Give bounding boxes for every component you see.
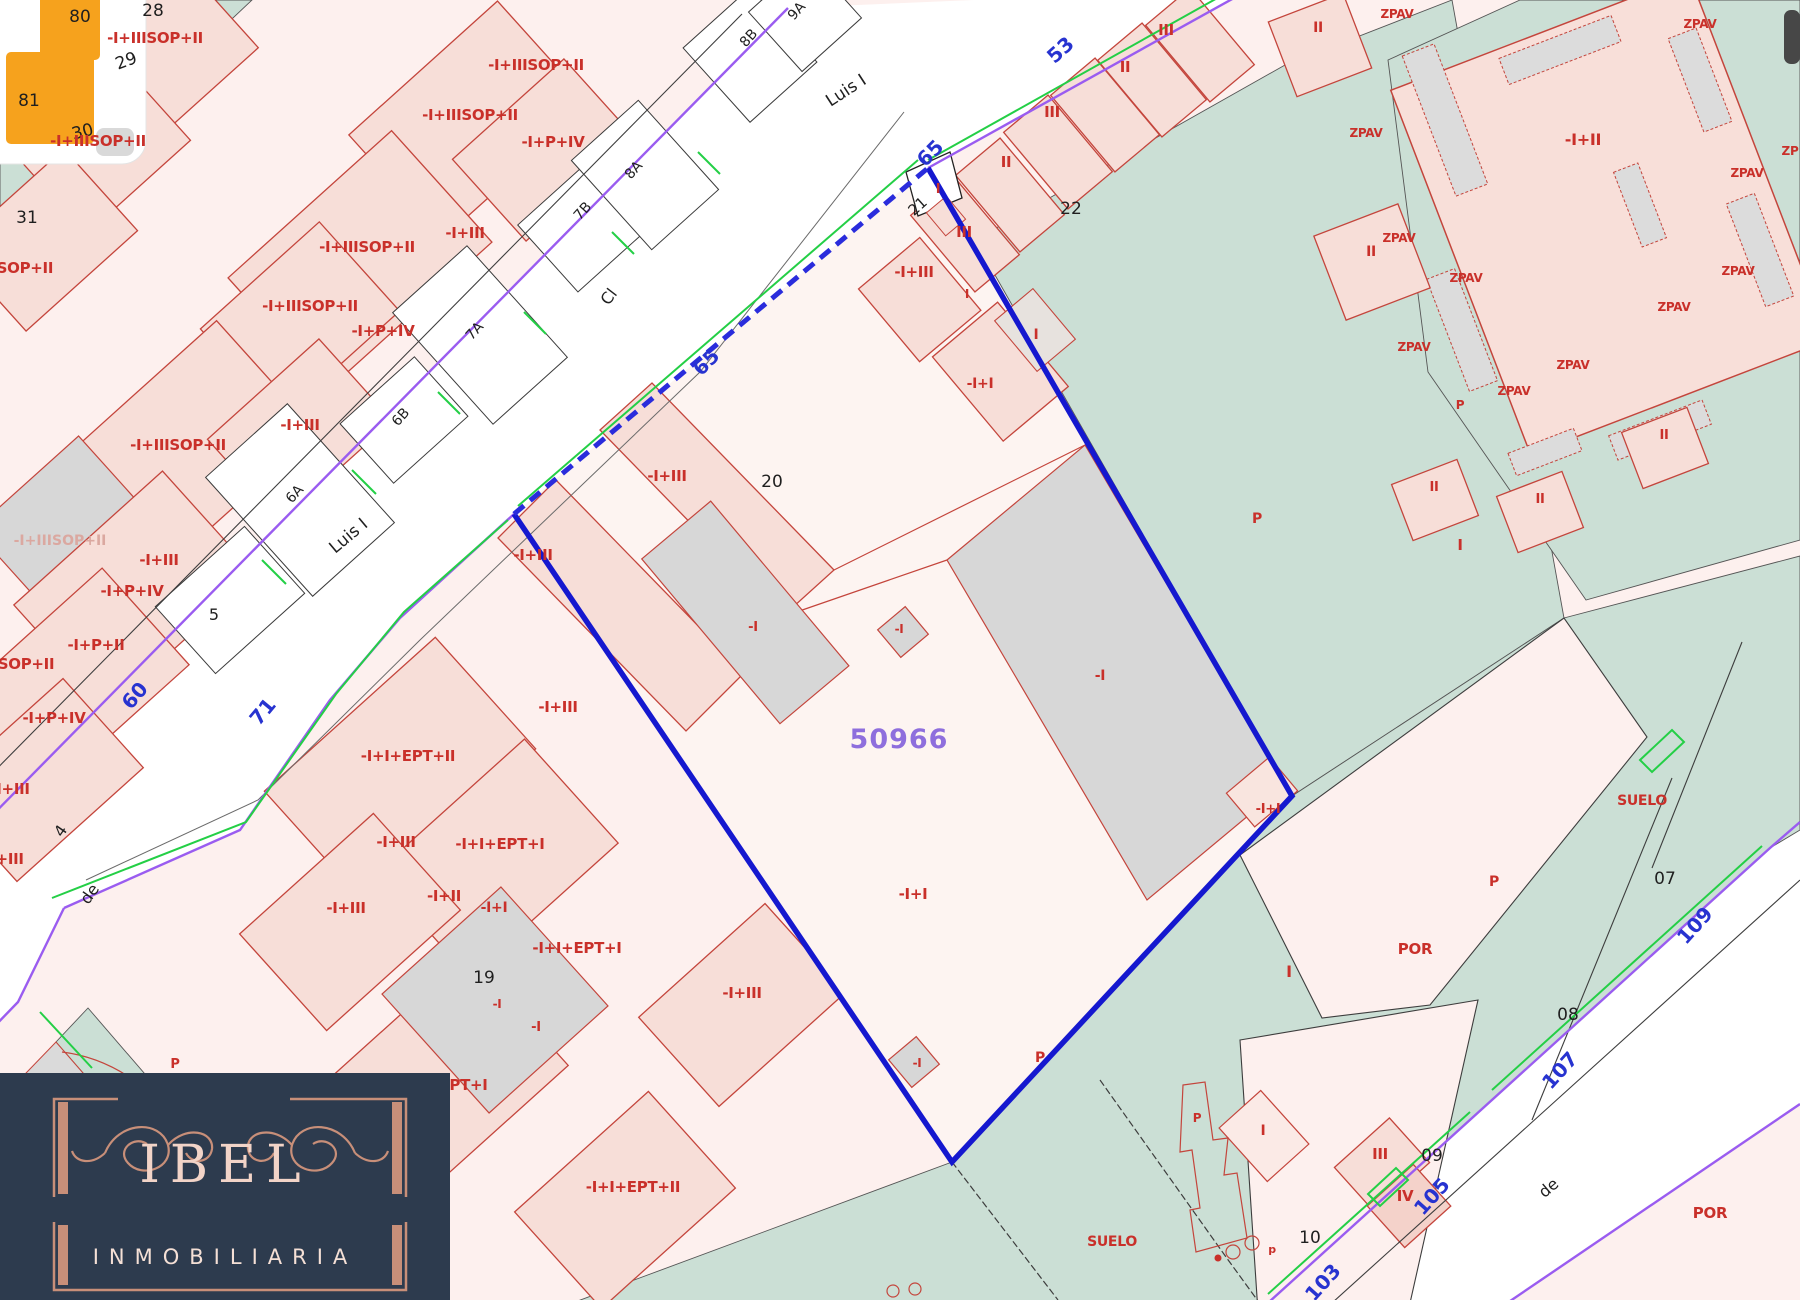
map-label: 09	[1421, 1146, 1443, 1166]
map-label: -I+III	[376, 833, 415, 851]
map-label: -I+II	[1565, 130, 1601, 149]
map-label: -I+P+IV	[100, 582, 164, 600]
map-label: III	[1158, 21, 1174, 39]
map-label: I	[1286, 962, 1292, 981]
map-label: -I+I	[967, 376, 994, 392]
map-label: II	[1659, 428, 1668, 443]
map-label: I	[936, 182, 941, 197]
map-label: ZPAV	[1722, 264, 1756, 278]
map-label: -I+I+EPT+I	[532, 939, 621, 957]
map-label: -I	[748, 620, 758, 635]
map-label: P	[1035, 1050, 1045, 1066]
map-label: III	[956, 223, 972, 241]
map-label: 50966	[850, 724, 949, 755]
map-label: -IIISOP+II	[0, 259, 53, 277]
map-label: IV	[1397, 1187, 1414, 1205]
ibel-watermark: IBEL INMOBILIARIA	[0, 1073, 450, 1300]
map-label: -I	[895, 622, 904, 636]
map-label: 08	[1557, 1005, 1579, 1025]
map-label: 22	[1060, 199, 1082, 219]
map-label: P	[1252, 511, 1262, 527]
map-label: 81	[18, 91, 40, 111]
map-label: -I+III	[722, 984, 761, 1002]
map-label: -I+P+IV	[521, 133, 585, 151]
map-label: -I+III	[513, 546, 552, 564]
map-label: I	[1261, 1123, 1266, 1139]
map-label: -I+III	[894, 263, 933, 281]
map-label: -I	[913, 1056, 922, 1070]
map-label: ZPAV	[1658, 300, 1692, 314]
map-label: II	[1001, 153, 1012, 171]
map-label: -I+II	[427, 887, 461, 905]
map-label: -I+III	[280, 416, 319, 434]
map-label: ZP	[1782, 144, 1799, 158]
top-right-ui-fragment	[1784, 10, 1800, 64]
map-label: ZPAV	[1381, 7, 1415, 21]
map-label: -I+I+EPT+II	[586, 1178, 680, 1196]
cadastral-map-screenshot: 80282981303154de6A6B7A7B8A8B9ALuis IClLu…	[0, 0, 1800, 1300]
map-label: SUELO	[1087, 1234, 1137, 1250]
map-label: -I+III	[0, 780, 30, 798]
map-label: III	[1044, 103, 1060, 121]
map-label: -I+IIISOP+II	[130, 436, 226, 454]
map-label: SOP+II	[0, 655, 54, 673]
map-label: ZPAV	[1450, 271, 1484, 285]
map-label: p	[1268, 1243, 1276, 1256]
map-label: II	[1366, 244, 1376, 260]
map-label: -I+III	[445, 224, 484, 242]
map-label: P	[170, 1057, 179, 1072]
map-label: -I+P+II	[68, 636, 125, 654]
watermark-subtitle: INMOBILIARIA	[0, 1245, 450, 1269]
map-label: -I+I	[1256, 802, 1281, 817]
map-label: -I+III	[139, 551, 178, 569]
map-label: 80	[69, 7, 91, 27]
map-label: 10	[1299, 1228, 1321, 1248]
map-label: SUELO	[1617, 793, 1667, 809]
map-label: ZPAV	[1684, 17, 1718, 31]
map-label: -I+III	[0, 850, 24, 868]
map-label: I	[965, 287, 969, 301]
map-label: 07	[1654, 869, 1676, 889]
map-label: ZPAV	[1498, 384, 1532, 398]
map-label: I	[1457, 536, 1462, 554]
map-label: -I+P+IV	[22, 709, 86, 727]
map-label: -I	[493, 997, 502, 1011]
map-label: ZPAV	[1398, 340, 1432, 354]
map-label: -I+IIISOP+II	[488, 56, 584, 74]
map-label: -I+IIISOP+II	[422, 106, 518, 124]
map-label: P	[1456, 398, 1465, 412]
map-label: POR	[1398, 940, 1433, 958]
map-label: ZPAV	[1350, 126, 1384, 140]
map-label: ZPAV	[1557, 358, 1591, 372]
map-label: 19	[473, 968, 495, 988]
map-label: POR	[1693, 1204, 1728, 1222]
map-label: -I+P+IV	[351, 322, 415, 340]
map-label: II	[1429, 480, 1438, 495]
map-label: -I	[1095, 668, 1105, 684]
map-label: I	[1034, 327, 1039, 343]
map-label: -I+IIISOP+II	[319, 238, 415, 256]
map-label: 31	[16, 208, 38, 228]
map-label: P	[1193, 1111, 1202, 1125]
map-label: -I+III	[538, 698, 577, 716]
map-label: II	[1313, 20, 1323, 36]
map-label: -I+I+EPT+I	[455, 835, 544, 853]
map-label: -I+IIISOP+II	[107, 29, 203, 47]
map-label: -I+I	[899, 885, 928, 903]
map-label: -I+I+EPT+II	[361, 747, 455, 765]
map-label: P	[1489, 874, 1499, 890]
map-label: -I+IIISOP+II	[50, 132, 146, 150]
map-label: ZPAV	[1731, 166, 1765, 180]
map-label: ZPAV	[1383, 231, 1417, 245]
map-label: III	[1372, 1145, 1388, 1163]
map-label: -I	[531, 1020, 541, 1035]
map-label: 20	[761, 472, 783, 492]
map-label: -I+I	[481, 900, 508, 916]
map-label: II	[1535, 492, 1544, 507]
map-label: 28	[142, 1, 164, 21]
map-label: -I+III	[326, 899, 365, 917]
map-label: II	[1120, 58, 1131, 76]
map-label: -I+III	[647, 467, 686, 485]
watermark-brand: IBEL	[0, 1135, 450, 1195]
map-label: 5	[209, 605, 219, 624]
map-label: -I+IIISOP+II	[14, 533, 107, 549]
map-label: -I+IIISOP+II	[262, 297, 358, 315]
